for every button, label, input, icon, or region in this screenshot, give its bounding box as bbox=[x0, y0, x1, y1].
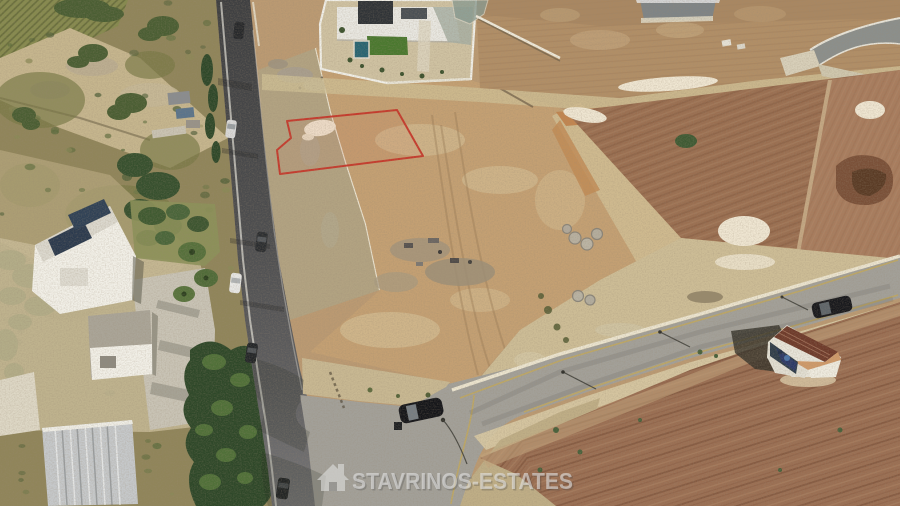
svg-text:STAVRINOS-ESTATES: STAVRINOS-ESTATES bbox=[352, 468, 573, 494]
